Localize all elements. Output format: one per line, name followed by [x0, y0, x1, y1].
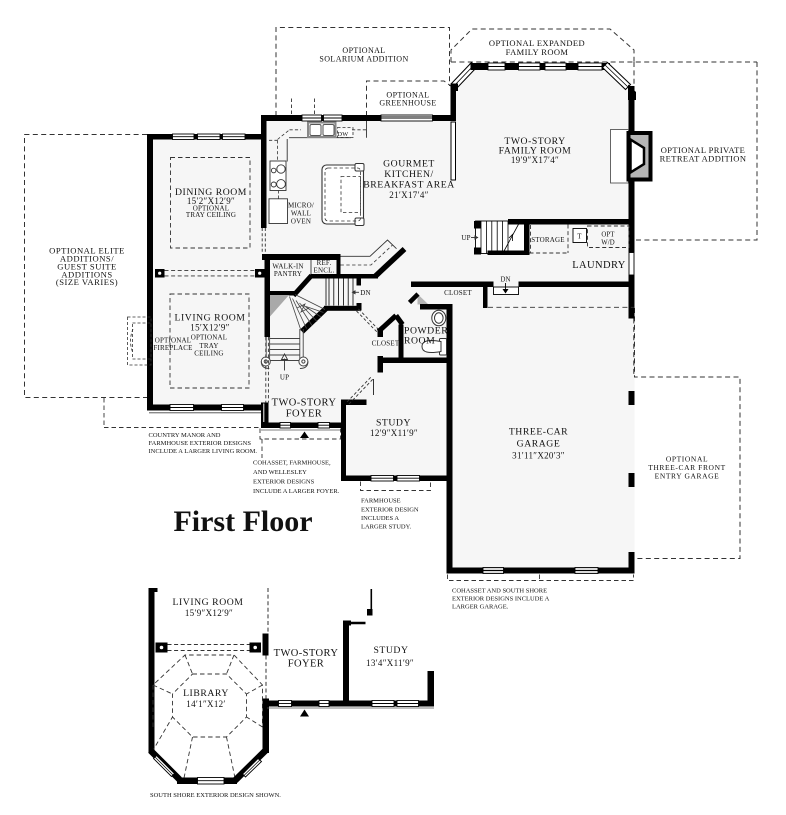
- svg-text:COHASSET, FARMHOUSE,: COHASSET, FARMHOUSE,: [253, 460, 331, 467]
- svg-text:OVEN: OVEN: [291, 218, 311, 226]
- svg-text:UP: UP: [280, 374, 289, 382]
- svg-text:(SIZE VARIES): (SIZE VARIES): [56, 277, 118, 287]
- svg-text:PANTRY: PANTRY: [274, 270, 302, 278]
- svg-text:31′11″X20′3″: 31′11″X20′3″: [512, 451, 565, 461]
- svg-text:ENCL.: ENCL.: [313, 267, 334, 275]
- svg-text:LAUNDRY: LAUNDRY: [572, 260, 626, 271]
- svg-text:13′4″X11′9″: 13′4″X11′9″: [366, 658, 414, 668]
- svg-text:STORAGE: STORAGE: [531, 236, 565, 244]
- svg-text:COHASSET AND SOUTH SHORE: COHASSET AND SOUTH SHORE: [452, 588, 547, 595]
- svg-text:EXTERIOR DESIGNS INCLUDE A: EXTERIOR DESIGNS INCLUDE A: [452, 596, 550, 603]
- svg-text:RETREAT ADDITION: RETREAT ADDITION: [660, 154, 747, 164]
- svg-text:15′X12′9″: 15′X12′9″: [190, 323, 229, 333]
- svg-text:DN: DN: [500, 277, 510, 284]
- svg-text:W/D: W/D: [601, 240, 615, 247]
- svg-text:UP: UP: [461, 234, 470, 242]
- svg-text:OPT: OPT: [601, 232, 615, 239]
- svg-text:DN: DN: [360, 289, 371, 297]
- svg-text:FIREPLACE: FIREPLACE: [153, 344, 192, 352]
- svg-text:STUDY: STUDY: [373, 645, 408, 656]
- svg-text:14′1″X12′: 14′1″X12′: [186, 699, 225, 709]
- svg-text:LIVING ROOM: LIVING ROOM: [173, 597, 244, 608]
- svg-text:LARGER STUDY.: LARGER STUDY.: [361, 524, 411, 531]
- svg-text:FARMHOUSE EXTERIOR DESIGNS: FARMHOUSE EXTERIOR DESIGNS: [149, 440, 252, 447]
- svg-text:GREENHOUSE: GREENHOUSE: [379, 99, 436, 108]
- svg-text:MICRO/: MICRO/: [288, 202, 314, 210]
- svg-text:ROOM: ROOM: [404, 336, 435, 347]
- svg-text:12′9″X11′9″: 12′9″X11′9″: [370, 428, 418, 438]
- svg-text:FOYER: FOYER: [288, 659, 324, 670]
- svg-text:GARAGE: GARAGE: [517, 439, 561, 450]
- svg-text:CLOSET: CLOSET: [444, 289, 472, 297]
- svg-text:CEILING: CEILING: [194, 350, 223, 358]
- svg-text:21′X17′4″: 21′X17′4″: [389, 190, 428, 200]
- svg-text:THREE-CAR: THREE-CAR: [509, 427, 568, 438]
- svg-text:T: T: [577, 233, 582, 241]
- svg-text:GOURMET: GOURMET: [383, 159, 435, 170]
- svg-text:COUNTRY MANOR AND: COUNTRY MANOR AND: [149, 432, 221, 439]
- svg-text:ENTRY GARAGE: ENTRY GARAGE: [655, 472, 720, 481]
- svg-text:First Floor: First Floor: [173, 505, 312, 538]
- svg-text:AND WELLESLEY: AND WELLESLEY: [253, 469, 307, 476]
- svg-text:19′9″X17′4″: 19′9″X17′4″: [511, 155, 559, 165]
- svg-text:TWO-STORY: TWO-STORY: [274, 648, 339, 659]
- svg-text:TWO-STORY: TWO-STORY: [272, 398, 337, 409]
- svg-text:KITCHEN/: KITCHEN/: [384, 169, 434, 180]
- svg-text:LIBRARY: LIBRARY: [183, 688, 229, 699]
- svg-text:STUDY: STUDY: [376, 418, 411, 429]
- svg-text:FAMILY ROOM: FAMILY ROOM: [506, 47, 569, 57]
- svg-text:LARGER GARAGE.: LARGER GARAGE.: [452, 604, 509, 611]
- svg-text:CLOSET: CLOSET: [372, 340, 400, 348]
- svg-text:EXTERIOR DESIGNS: EXTERIOR DESIGNS: [253, 479, 315, 486]
- svg-text:EXTERIOR DESIGN: EXTERIOR DESIGN: [361, 507, 419, 514]
- svg-text:INCLUDES A: INCLUDES A: [361, 515, 399, 522]
- svg-text:FARMHOUSE: FARMHOUSE: [361, 498, 401, 505]
- svg-text:SOUTH SHORE EXTERIOR DESIGN SH: SOUTH SHORE EXTERIOR DESIGN SHOWN.: [150, 792, 281, 799]
- svg-text:FOYER: FOYER: [286, 409, 322, 420]
- svg-text:15′9″X12′9″: 15′9″X12′9″: [185, 608, 233, 618]
- svg-text:BREAKFAST AREA: BREAKFAST AREA: [363, 180, 455, 191]
- svg-text:WALL: WALL: [291, 210, 311, 218]
- svg-text:INCLUDE A LARGER LIVING ROOM.: INCLUDE A LARGER LIVING ROOM.: [149, 448, 258, 455]
- svg-text:OPTIONAL: OPTIONAL: [191, 334, 228, 342]
- svg-text:INCLUDE A LARGER FOYER.: INCLUDE A LARGER FOYER.: [253, 488, 340, 495]
- svg-text:TRAY CEILING: TRAY CEILING: [186, 211, 236, 219]
- svg-text:SOLARIUM ADDITION: SOLARIUM ADDITION: [319, 55, 408, 64]
- svg-text:DW: DW: [338, 131, 349, 138]
